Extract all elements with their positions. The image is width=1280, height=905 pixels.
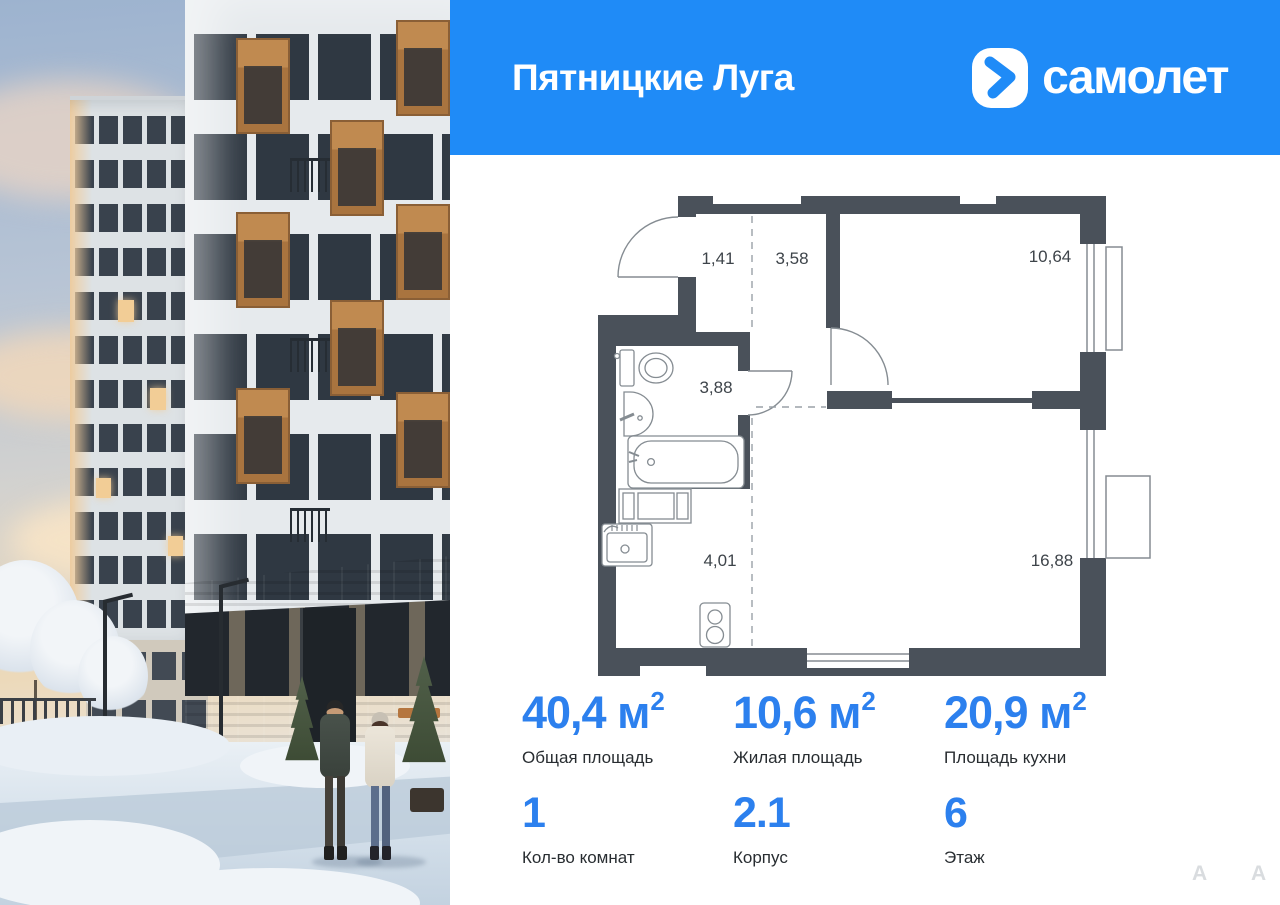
stat-sup: 2 xyxy=(1072,686,1085,716)
stat-label: Корпус xyxy=(733,848,790,868)
balcony xyxy=(396,20,450,116)
balcony xyxy=(236,212,290,308)
stat-label: Площадь кухни xyxy=(944,748,1085,768)
project-photo xyxy=(0,0,450,905)
bedroom-door-arc xyxy=(831,328,888,385)
room-area-label: 3,88 xyxy=(699,378,732,397)
stat-living-area: 10,6 м2 Жилая площадь xyxy=(733,690,874,768)
stat-label: Этаж xyxy=(944,848,985,868)
person-woman xyxy=(364,712,396,867)
bathtub-icon xyxy=(628,436,744,488)
floor-plan: 1,41 3,58 10,64 3,88 4,01 16,88 xyxy=(590,188,1156,684)
washing-machine-icon xyxy=(619,489,691,523)
balcony xyxy=(236,38,290,134)
stat-sup: 2 xyxy=(861,686,874,716)
lit-window xyxy=(168,536,183,556)
stat-label: Жилая площадь xyxy=(733,748,874,768)
balcony xyxy=(236,388,290,484)
samolet-logo: самолет xyxy=(971,47,1228,109)
lit-window xyxy=(118,300,134,322)
bathroom-door-arc xyxy=(748,371,792,415)
kitchen-sink-icon xyxy=(602,524,652,566)
railing xyxy=(290,338,330,372)
stat-label: Общая площадь xyxy=(522,748,663,768)
zone-dashes xyxy=(752,216,826,646)
stat-value: 2.1 xyxy=(733,792,790,835)
room-area-label: 3,58 xyxy=(775,249,808,268)
stat-total-area: 40,4 м2 Общая площадь xyxy=(522,690,663,768)
stat-floor: 6 Этаж xyxy=(944,792,985,868)
street-lamp xyxy=(219,585,223,757)
railing xyxy=(290,508,330,542)
lit-window xyxy=(150,388,166,410)
stat-label: Кол-во комнат xyxy=(522,848,635,868)
stat-value: 1 xyxy=(522,792,635,835)
balcony xyxy=(330,120,384,216)
washbasin-icon xyxy=(620,392,653,436)
room-area-label: 16,88 xyxy=(1031,551,1074,570)
stat-sup: 2 xyxy=(650,686,663,716)
project-title: Пятницкие Луга xyxy=(512,57,794,99)
listing-card: Пятницкие Луга самолет xyxy=(0,0,1280,905)
stat-value: 6 xyxy=(944,792,985,835)
balcony xyxy=(396,204,450,300)
watermark-letter: А xyxy=(1192,862,1207,886)
room-area-label: 1,41 xyxy=(701,249,734,268)
planter-pot xyxy=(410,788,444,812)
samolet-logo-icon xyxy=(971,47,1029,109)
entrance-door-arc xyxy=(618,217,678,277)
railing xyxy=(290,158,330,192)
header-bar: Пятницкие Луга самолет xyxy=(450,0,1280,155)
watermark-letter: А xyxy=(1251,862,1266,886)
lit-window xyxy=(96,478,111,498)
stove-icon xyxy=(700,603,730,647)
toilet-icon xyxy=(615,350,674,386)
stat-value: 10,6 м xyxy=(733,687,860,738)
stat-value: 40,4 м xyxy=(522,687,649,738)
samolet-logo-text: самолет xyxy=(1042,50,1228,105)
stat-building: 2.1 Корпус xyxy=(733,792,790,868)
stat-kitchen-area: 20,9 м2 Площадь кухни xyxy=(944,690,1085,768)
room-area-label: 10,64 xyxy=(1029,247,1072,266)
balcony xyxy=(330,300,384,396)
person-man xyxy=(318,700,352,865)
room-area-label: 4,01 xyxy=(703,551,736,570)
stat-value: 20,9 м xyxy=(944,687,1071,738)
info-panel: Пятницкие Луга самолет xyxy=(450,0,1280,905)
balcony xyxy=(396,392,450,488)
stat-rooms: 1 Кол-во комнат xyxy=(522,792,635,868)
window-bay xyxy=(1106,476,1150,558)
